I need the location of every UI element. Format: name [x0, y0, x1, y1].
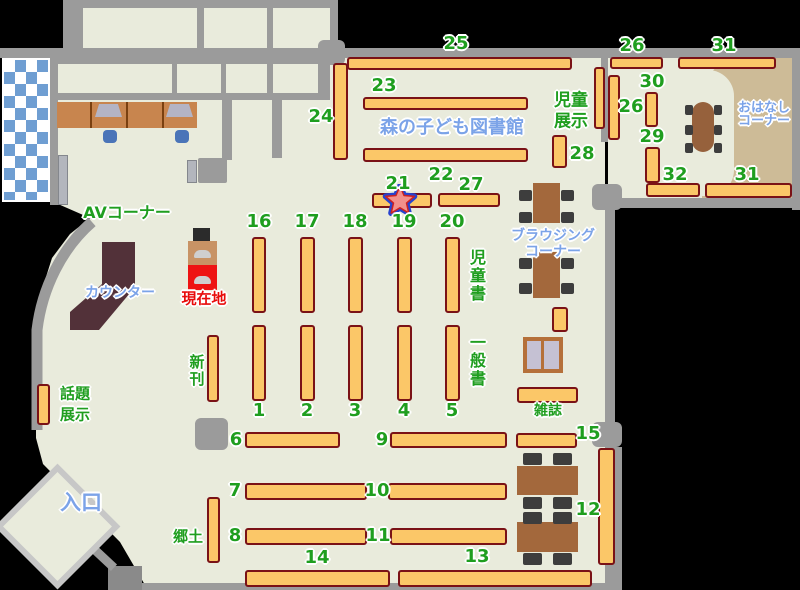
shelf-18 [348, 237, 363, 313]
shelf-7 [245, 483, 367, 500]
shelf-number-31-top: 31 [711, 37, 736, 55]
room [204, 8, 267, 48]
shelf-children-display [594, 67, 605, 129]
av-desk-divider [126, 102, 128, 128]
kiosk-top [193, 228, 210, 241]
area-label-av-corner: AVコーナー [83, 205, 171, 221]
chair [553, 453, 572, 465]
shelf-28 [552, 135, 567, 168]
chair [561, 212, 574, 223]
current-location-label: 現在地 [181, 292, 226, 307]
shelf-number-12: 12 [575, 501, 600, 519]
chair [553, 512, 572, 524]
shelf-new-books [207, 335, 219, 402]
shelf-number-23: 23 [371, 77, 396, 95]
chair [561, 190, 574, 201]
shelf-number-11: 11 [365, 527, 390, 545]
shelf-4 [397, 325, 412, 401]
shelf-number-24: 24 [308, 108, 333, 126]
shelf-20 [445, 237, 460, 313]
shelf-5 [445, 325, 460, 401]
chair [561, 283, 574, 294]
shelf-number-6: 6 [230, 431, 243, 449]
shelf-9 [390, 432, 507, 448]
shelf-number-31-bottom: 31 [734, 166, 759, 184]
shelf-number-20: 20 [439, 213, 464, 231]
map-title: 森の子ども図書館 [380, 119, 524, 137]
room [177, 64, 221, 93]
library-floor-map: 森の子ども図書館25232422212726313026292832311617… [0, 0, 800, 590]
shelf-number-19: 19 [391, 213, 416, 231]
shelf-13 [398, 570, 592, 587]
area-label-magazines: 雑誌 [534, 404, 562, 418]
shelf-10 [388, 483, 507, 500]
shelf-27 [438, 193, 500, 207]
kiosk-body-arc [194, 250, 211, 258]
shelf-number-4: 4 [398, 402, 411, 420]
shelf-31b [705, 183, 792, 198]
room [273, 64, 318, 93]
shelf-6 [245, 432, 340, 448]
browsing-table [533, 183, 560, 223]
shelf-number-30: 30 [639, 73, 664, 91]
chair [714, 143, 722, 153]
door [187, 160, 197, 183]
room [83, 8, 197, 48]
shelf-3 [348, 325, 363, 401]
shelf-number-15: 15 [575, 425, 600, 443]
area-label-local: 郷土 [173, 530, 203, 545]
shelf-number-32: 32 [662, 166, 687, 184]
area-label-children-display-line2: 展示 [554, 114, 588, 131]
shelf-23 [363, 97, 528, 110]
monitor-icon [166, 104, 193, 117]
shelf-26h [610, 57, 663, 69]
area-label-entrance: 入口 [60, 493, 102, 514]
monitor-icon [95, 104, 122, 117]
door [58, 155, 68, 205]
chair [523, 497, 542, 509]
shelf-24 [333, 63, 348, 160]
shelf-number-13: 13 [464, 548, 489, 566]
shelf-number-9: 9 [376, 431, 389, 449]
study-table [517, 466, 578, 495]
av-chair [103, 130, 117, 143]
chair [685, 125, 693, 135]
shelf-15 [516, 433, 577, 448]
shelf-22 [363, 148, 528, 162]
shelf-2 [300, 325, 315, 401]
shelf-number-28: 28 [569, 145, 594, 163]
chair [519, 212, 532, 223]
shelf-14 [245, 570, 390, 587]
area-label-story-corner-line2: コーナー [738, 115, 790, 128]
shelf-number-18: 18 [342, 213, 367, 231]
chair [553, 553, 572, 565]
chair [553, 497, 572, 509]
shelf-11 [390, 528, 507, 545]
shelf-number-10: 10 [364, 482, 389, 500]
room [226, 64, 267, 93]
chair [685, 105, 693, 115]
shelf-number-5: 5 [446, 402, 459, 420]
chair [519, 190, 532, 201]
shelf-number-26-side: 26 [618, 98, 643, 116]
shelf-number-7: 7 [229, 482, 242, 500]
area-label-topic-display-line2: 展示 [60, 408, 90, 423]
shelf-number-25: 25 [443, 35, 468, 53]
chair [714, 105, 722, 115]
pillar [592, 184, 622, 210]
shelf-19 [397, 237, 412, 313]
utility-box [198, 158, 227, 183]
shelf-number-27: 27 [458, 176, 483, 194]
chair [523, 453, 542, 465]
shelf-local [207, 497, 220, 563]
shelf-number-17: 17 [294, 213, 319, 231]
shelf-number-16: 16 [246, 213, 271, 231]
shelf-number-21: 21 [385, 175, 410, 193]
corridor-wall [222, 100, 232, 160]
shelf-29 [645, 147, 660, 183]
av-desk-divider [90, 102, 92, 128]
story-bottom-wall [600, 198, 800, 208]
shelf-25 [347, 57, 572, 70]
shelf-number-14: 14 [304, 549, 329, 567]
story-right-wall [792, 48, 800, 210]
shelf-16 [252, 237, 266, 313]
story-table [692, 102, 714, 152]
shelf-30 [645, 92, 658, 127]
shelf-browsing-small [552, 307, 568, 332]
chair [685, 143, 693, 153]
shelf-number-8: 8 [229, 527, 242, 545]
shelf-magazines [517, 387, 578, 403]
shelf-topic-display [37, 384, 50, 425]
shelf-number-1: 1 [253, 402, 266, 420]
pillar [318, 40, 345, 65]
av-desk-divider [162, 102, 164, 128]
area-label-general-books: 一般書 [468, 334, 484, 388]
corridor-wall [272, 100, 282, 158]
shelf-number-3: 3 [349, 402, 362, 420]
room [57, 64, 172, 93]
chair [523, 512, 542, 524]
shelf-32 [646, 183, 700, 197]
chair [714, 125, 722, 135]
av-chair [175, 130, 189, 143]
window-side-wall [50, 58, 58, 205]
area-label-children-books: 児童書 [468, 249, 484, 303]
current-location-marker-arc [194, 276, 211, 284]
study-table [517, 522, 578, 552]
pillar [195, 418, 228, 450]
shelf-1 [252, 325, 266, 401]
area-label-new-books: 新刊 [189, 354, 204, 388]
shelf-number-22: 22 [428, 166, 453, 184]
entrance-side-wall [108, 566, 142, 590]
shelf-17 [300, 237, 315, 313]
sofa-divider [541, 339, 544, 371]
shelf-number-29: 29 [639, 128, 664, 146]
area-label-browsing-line2: コーナー [525, 245, 581, 259]
shelf-number-2: 2 [301, 402, 314, 420]
window-checkered-panel [2, 58, 50, 202]
shelf-8 [245, 528, 367, 545]
chair [519, 283, 532, 294]
shelf-number-26-top: 26 [619, 37, 644, 55]
shelf-12 [598, 448, 615, 565]
area-label-topic-display-line1: 話題 [60, 387, 90, 402]
area-label-children-display-line1: 児童 [554, 93, 588, 110]
chair [523, 553, 542, 565]
shelf-31t [678, 57, 776, 69]
area-label-browsing-line1: ブラウジング [511, 229, 595, 243]
area-label-counter: カウンター [85, 286, 155, 300]
